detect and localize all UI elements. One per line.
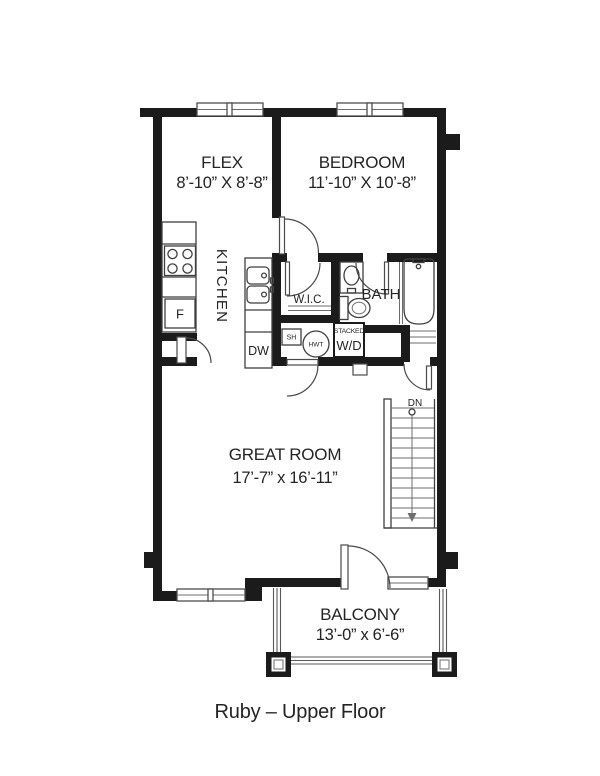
balcony-room-dims: 13’-0” x 6’-6” [316,626,404,644]
balcony-door [341,545,390,589]
bedroom-room-dims: 11’-10” X 10’-8” [308,174,416,192]
plan-title: Ruby – Upper Floor [215,701,386,723]
floor-plan-drawing: F DW SH HWT STACKED W/D [0,0,600,776]
linen-shelves [410,331,436,343]
dishwasher-label: DW [248,344,269,358]
fridge: F [165,299,195,328]
wic-room-label: W.I.C. [293,294,324,306]
hot-water-tank: HWT [303,331,329,357]
stove [165,246,196,276]
wic-shelf [288,306,331,311]
wd-label-top: STACKED [334,328,364,335]
balcony-side-window [388,577,428,589]
great-room-dims: 17’-7” x 16’-11” [233,469,338,487]
kitchen-sink [247,267,274,303]
kitchen-room-label: KITCHEN [213,249,230,323]
balcony-label-group: BALCONY 13’-0” x 6’-6” [316,605,404,644]
flex-room-dims: 8’-10” X 8’-8” [176,174,267,192]
great-room-label: GREAT ROOM [229,445,342,464]
floor-plan-page: F DW SH HWT STACKED W/D [0,0,600,776]
stacked-washer-dryer: STACKED W/D [334,323,364,357]
shelf-label: SH [287,335,297,342]
bedroom-window [337,103,403,116]
wd-label-bottom: W/D [336,338,361,353]
hall-left-door [287,360,318,397]
fridge-label: F [176,307,184,322]
plumbing-chase [353,364,367,375]
hwt-label: HWT [309,342,324,349]
great-room-window [177,589,245,601]
utility-shelf: SH [282,329,301,345]
stairs-dn-label: DN [408,398,422,409]
wic-door [286,262,321,296]
balcony-room-label: BALCONY [320,605,400,624]
bedroom-label-group: BEDROOM 11’-10” X 10’-8” [308,153,416,192]
dishwasher: DW [248,344,269,358]
bath-room-label: BATH [362,286,401,303]
hall-right-door [404,364,432,390]
balcony-post-right [432,652,457,677]
staircase: DN [384,398,437,528]
great-room-label-group: GREAT ROOM 17’-7” x 16’-11” [229,445,342,487]
flex-label-group: FLEX 8’-10” X 8’-8” [176,153,267,192]
bedroom-door [280,217,319,254]
bathtub [400,259,435,324]
bedroom-room-label: BEDROOM [319,153,405,172]
flex-room-label: FLEX [201,153,243,172]
balcony-post-left [266,652,291,677]
flex-window [197,103,263,116]
